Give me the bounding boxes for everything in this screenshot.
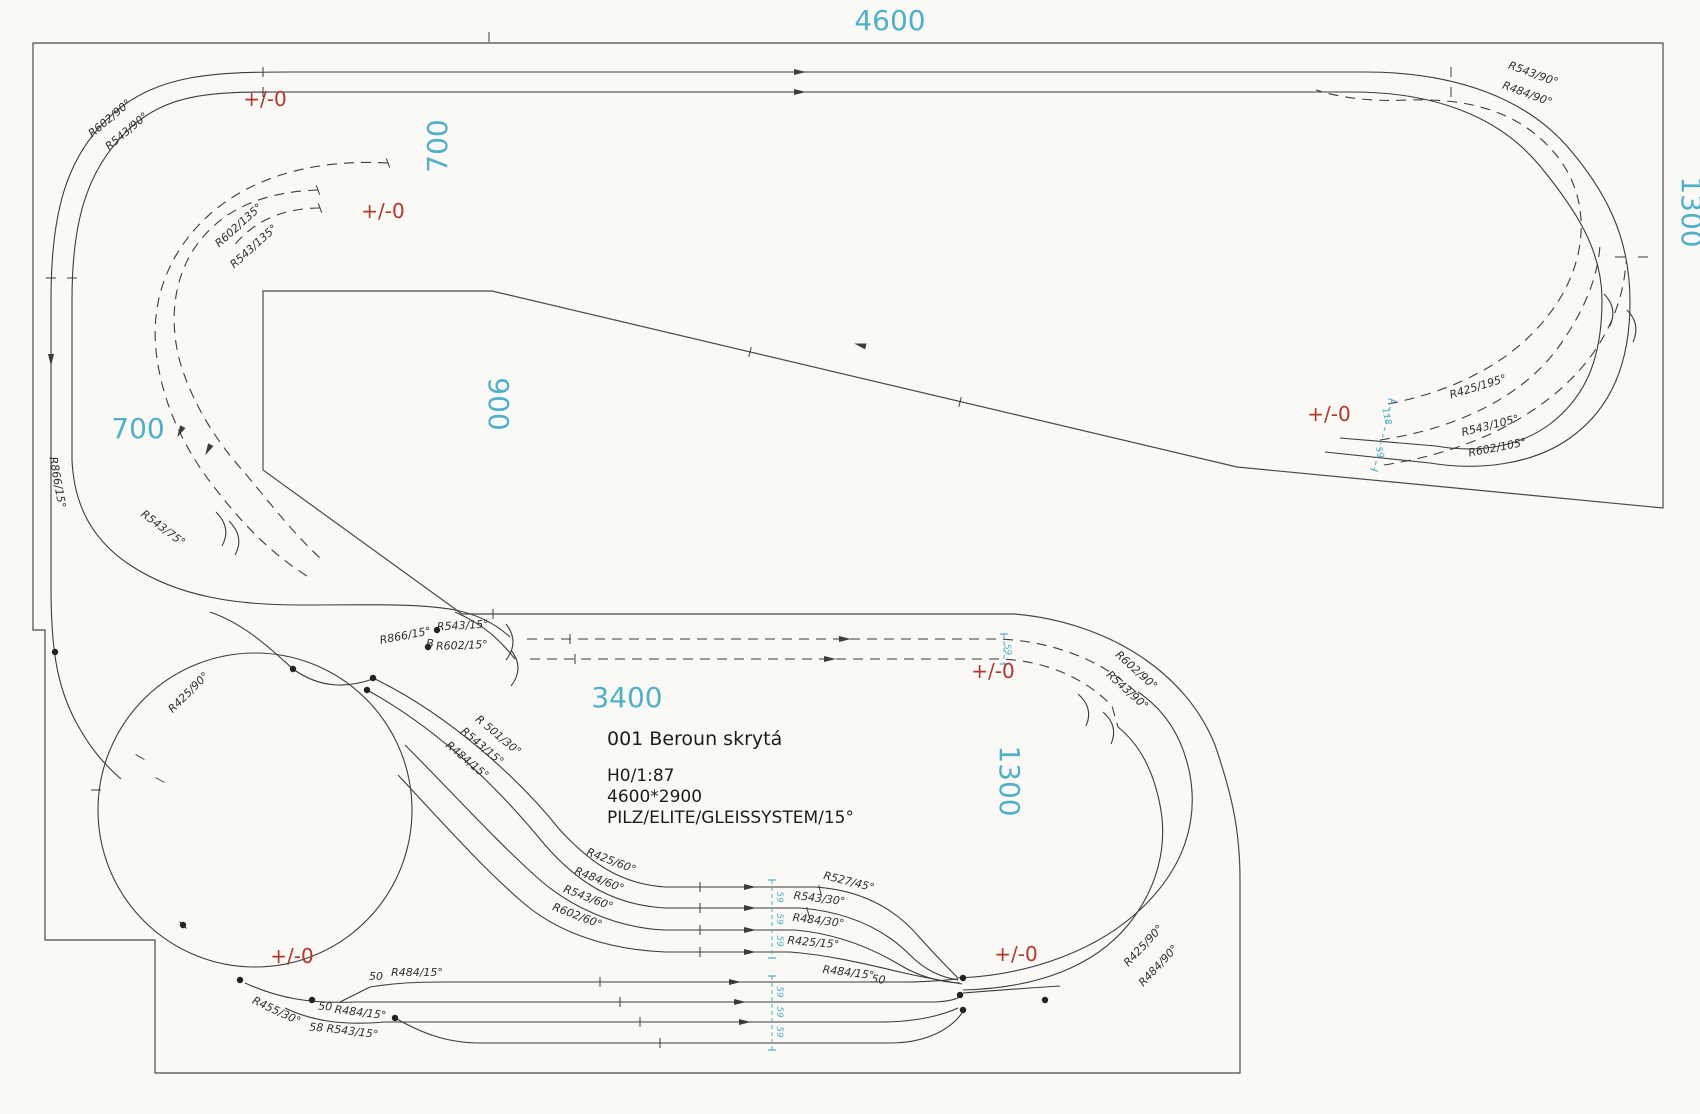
turnout-node (180, 922, 186, 928)
plan-title: 001 Beroun skrytá (607, 728, 854, 750)
turnout-node (957, 992, 963, 998)
track-label: R543/105° (1460, 412, 1520, 439)
dimension-label: 900 (482, 377, 515, 430)
turnout-node (52, 649, 58, 655)
track-label: R866/15° (47, 456, 69, 509)
rail-joint-tick (136, 755, 145, 760)
track-label: R543/30° (793, 889, 846, 908)
track-label: 58 (309, 1021, 324, 1035)
elevation-mark: +/-0 (361, 199, 404, 223)
track-label: R527/45° (822, 869, 875, 894)
turnout-node (290, 666, 296, 672)
spacing-mark: 118 (1379, 407, 1393, 426)
tunnel-portal-icon (1604, 294, 1613, 326)
turnout-node (960, 975, 966, 981)
direction-arrow-icon (744, 884, 756, 890)
track-label: R484/15° (391, 966, 443, 979)
turnout-node (392, 1015, 398, 1021)
turnout-node (237, 977, 243, 983)
tunnel-portal-icon (1078, 694, 1089, 726)
direction-arrow-icon (839, 636, 851, 642)
plan-size: 4600*2900 (607, 787, 854, 808)
spacing-mark: 59 (774, 1026, 784, 1038)
track-solid (98, 653, 412, 967)
spacing-mark: 59 (774, 913, 784, 925)
track-label: 50 (871, 972, 886, 987)
elevation-mark: +/-0 (971, 659, 1014, 683)
spacing-mark: 59 (774, 935, 784, 947)
track-hidden (1380, 245, 1600, 440)
tunnel-portal-icon (1627, 310, 1636, 342)
track-solid (51, 587, 121, 779)
elevation-mark: +/-0 (994, 942, 1037, 966)
elevation-mark: +/-0 (1307, 402, 1350, 426)
spacing-mark: 59 (1001, 643, 1012, 656)
track-hidden (1384, 262, 1626, 465)
track-label: R866/15° (379, 624, 432, 647)
title-block: 001 Beroun skrytá H0/1:87 4600*2900 PILZ… (607, 728, 854, 829)
track-hidden (1316, 90, 1581, 404)
track-solid (395, 1013, 962, 1043)
dimension-label: 4600 (854, 4, 925, 37)
direction-arrow-icon (729, 979, 741, 985)
spacing-mark: 59 (774, 891, 784, 903)
turnout-node (364, 687, 370, 693)
tunnel-portal-icon (216, 512, 226, 546)
elevation-mark: +/-0 (270, 944, 313, 968)
turnout-node (1042, 997, 1048, 1003)
direction-arrow-icon (739, 1019, 751, 1025)
track-solid (245, 983, 963, 1002)
direction-arrow-icon (744, 949, 756, 955)
track-label: R543/75° (138, 507, 187, 549)
track-label: 50 (318, 1000, 333, 1014)
direction-arrow-icon (853, 341, 866, 350)
rail-joint-tick (156, 778, 165, 783)
track-label: B (426, 637, 434, 650)
track-label: R543/15° (326, 1022, 379, 1041)
spacing-mark: 59 (774, 1006, 784, 1018)
plan-tracksystem: PILZ/ELITE/GLEISSYSTEM/15° (607, 808, 854, 829)
track-label: R602/15° (436, 638, 488, 653)
spacing-mark: 59 (774, 986, 784, 998)
direction-arrow-icon (175, 425, 186, 438)
track-label: R425/195° (1448, 372, 1508, 402)
track-solid (340, 987, 370, 1002)
track-label: R543/15° (437, 618, 489, 634)
direction-arrow-icon (734, 999, 746, 1005)
turnout-node (960, 1007, 966, 1013)
tunnel-portal-icon (1103, 712, 1114, 744)
track-label: R484/15° (822, 963, 875, 982)
turnout-node (370, 675, 376, 681)
track-plan-page: 4600130070070090034001300+/-0+/-0+/-0+/-… (0, 0, 1700, 1114)
tunnel-portal-icon (229, 521, 239, 555)
elevation-mark: +/-0 (243, 87, 286, 111)
track-solid (72, 460, 510, 637)
track-label: 50 (369, 970, 383, 983)
dimension-label: 700 (421, 119, 454, 172)
turnout-node (309, 997, 315, 1003)
dimension-label: 1300 (993, 745, 1026, 816)
track-solid (51, 72, 1630, 587)
dimension-label: 3400 (591, 681, 662, 714)
dimension-label: 700 (111, 412, 164, 445)
track-solid (210, 612, 373, 685)
track-solid (72, 92, 1602, 460)
track-plan-drawing: 4600130070070090034001300+/-0+/-0+/-0+/-… (0, 0, 1700, 1114)
direction-arrow-icon (794, 69, 806, 75)
dimension-label: 1300 (1675, 176, 1700, 247)
direction-arrow-icon (794, 89, 806, 95)
direction-arrow-icon (824, 656, 836, 662)
direction-arrow-icon (48, 354, 54, 366)
baseboard-outline (33, 43, 1663, 1073)
direction-arrow-icon (744, 905, 756, 911)
direction-arrow-icon (744, 927, 756, 933)
direction-arrow-icon (203, 443, 214, 456)
plan-scale: H0/1:87 (607, 766, 854, 787)
track-label: R484/15° (334, 1003, 387, 1022)
track-label: R602/105° (1467, 436, 1527, 460)
